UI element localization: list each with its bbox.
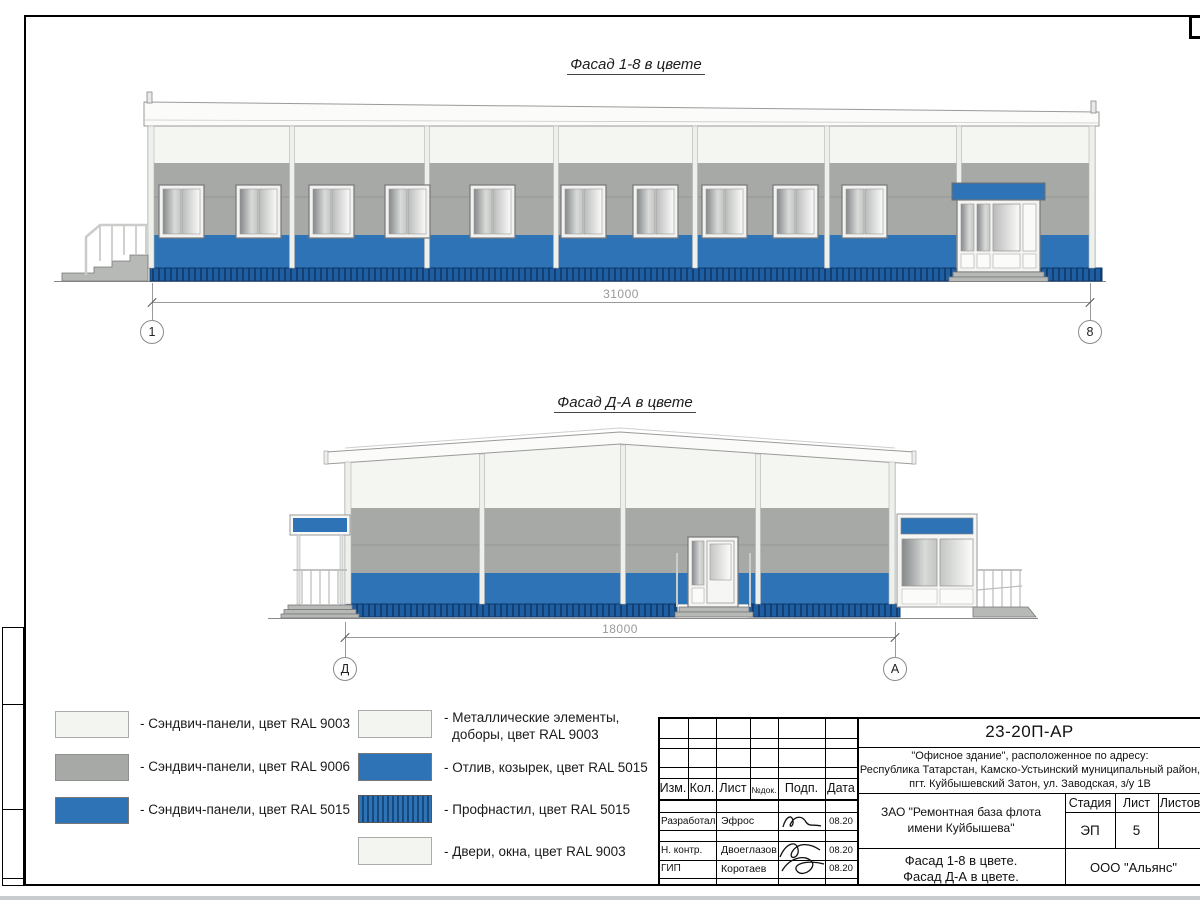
stage-value: ЭП [1065,823,1115,838]
window [702,185,747,238]
vestibule-canopy-band [901,518,973,534]
sheet-corner-mark [1189,15,1200,39]
window [159,185,204,238]
wall-panels [345,443,895,605]
legend-swatch-ral5015 [55,797,129,824]
window [561,185,606,238]
plinth-profiled-sheet [347,604,677,617]
porch-canopy [293,518,347,532]
sheet-title-line2: Фасад Д-А в цвете. [857,869,1065,884]
legend-swatch-ral9006 [55,754,129,781]
window [309,185,354,238]
row-role: Разработал [661,816,715,827]
door-steps [679,607,749,612]
sheet-header: Лист [1115,796,1158,810]
legend-label: - Сэндвич-панели, цвет RAL 9006 [140,759,350,774]
col-header-ndoc: №док. [750,785,778,795]
project-address-line1: "Офисное здание", расположенное по адрес… [858,750,1200,762]
legend-swatch-profnastil [358,795,432,823]
door-steps [675,612,753,617]
stamp-strip-divider [3,809,23,810]
left-stamp-strip [2,627,24,886]
legend-swatch-ral9003 [358,837,432,865]
extension-line [895,622,896,657]
dimension-value: 31000 [571,287,671,301]
porch-steps [284,610,356,615]
entrance-steps [953,272,1044,277]
legend-swatch-ral9003 [55,711,129,738]
row-name: Эфрос [721,815,754,827]
signature [780,813,824,831]
roof-pipe [147,92,152,103]
window [470,185,515,238]
vestibule-steps [973,607,1036,617]
vestibule-window [940,539,973,586]
side-stairs [62,225,148,281]
col-header-podp: Подп. [778,781,825,795]
stamp-strip-divider [3,704,23,705]
entrance-steps [949,277,1048,282]
facade-1-8-title: Фасад 1-8 в цвете [536,56,736,75]
col-header-kol: Кол. [688,781,716,795]
legend-label: - Двери, окна, цвет RAL 9003 [444,844,626,859]
legend-label: - Отлив, козырек, цвет RAL 5015 [444,760,648,775]
legend-swatch-ral5015 [358,753,432,781]
plinth-profiled-sheet [749,604,900,617]
col-header-list: Лист [716,781,750,795]
roof-fascia [144,92,1099,126]
row-date: 08.20 [825,816,857,827]
sheet-number: 5 [1115,823,1158,838]
drawing-sheet: Фасад 1-8 в цвете [0,0,1200,900]
row-role: ГИП [661,863,681,874]
sheet-border-left [24,15,26,886]
sheet-border-top [24,15,1200,17]
sheets-header: Листов [1158,796,1200,810]
window [385,185,430,238]
window [633,185,678,238]
row-date: 08.20 [825,863,857,874]
porch-steps [288,605,352,610]
stage-header: Стадия [1065,796,1115,810]
facade-1-8-title-text: Фасад 1-8 в цвете [567,56,705,75]
window [773,185,818,238]
window [842,185,887,238]
project-address-line2: Республика Татарстан, Камско-Устьинский … [858,764,1200,776]
facade-1-8-drawing [50,85,1110,285]
axis-bubble-d: Д [333,657,357,681]
door-glass [710,544,731,580]
legend-label: - Профнастил, цвет RAL 5015 [444,802,630,817]
axis-bubble-8: 8 [1078,320,1102,344]
entrance-canopy [952,183,1045,200]
col-header-izm: Изм. [658,781,688,795]
row-role: Н. контр. [661,845,702,856]
porch-steps [281,614,359,618]
sheet-title-line1: Фасад 1-8 в цвете. [857,853,1065,868]
signature [776,839,828,881]
facade-d-a-title: Фасад Д-А в цвете [525,394,725,413]
client-name-line1: ЗАО "Ремонтная база флота [857,805,1065,819]
entrance [949,183,1048,282]
axis-bubble-a: А [883,657,907,681]
stamp-strip-divider [3,878,23,879]
project-address-line3: пгт. Куйбышевский Затон, ул. Заводская, … [858,778,1200,790]
legend-label: - Сэндвич-панели, цвет RAL 9003 [140,716,350,731]
roof-pipe [1091,101,1096,113]
row-name: Двоеглазов [721,844,777,856]
dimension-value: 18000 [570,622,670,636]
window [236,185,281,238]
row-date: 08.20 [825,845,857,856]
facade-d-a-drawing [260,418,1050,628]
legend-label: - Сэндвич-панели, цвет RAL 5015 [140,802,350,817]
client-name-line2: имени Куйбышева" [857,821,1065,835]
extension-line [345,622,346,657]
title-block: Изм. Кол. Лист №док. Подп. Дата Разработ… [658,717,1200,886]
axis-bubble-1: 1 [140,320,164,344]
col-header-data: Дата [825,781,857,795]
legend-label: доборы, цвет RAL 9003 [452,727,599,742]
right-vestibule [897,514,1036,617]
dimension-line [152,302,1091,303]
row-name: Коротаев [721,863,766,875]
legend-label: - Металлические элементы, [444,710,619,725]
project-code: 23-20П-АР [857,722,1200,742]
legend-swatch-ral9003 [358,710,432,738]
company-name: ООО "Альянс" [1065,860,1200,875]
entrance-door-glass [993,204,1020,251]
sheet-edge-shadow [0,896,1200,900]
dimension-line [345,637,896,638]
vestibule-window [902,539,937,586]
facade-d-a-title-text: Фасад Д-А в цвете [554,394,695,413]
